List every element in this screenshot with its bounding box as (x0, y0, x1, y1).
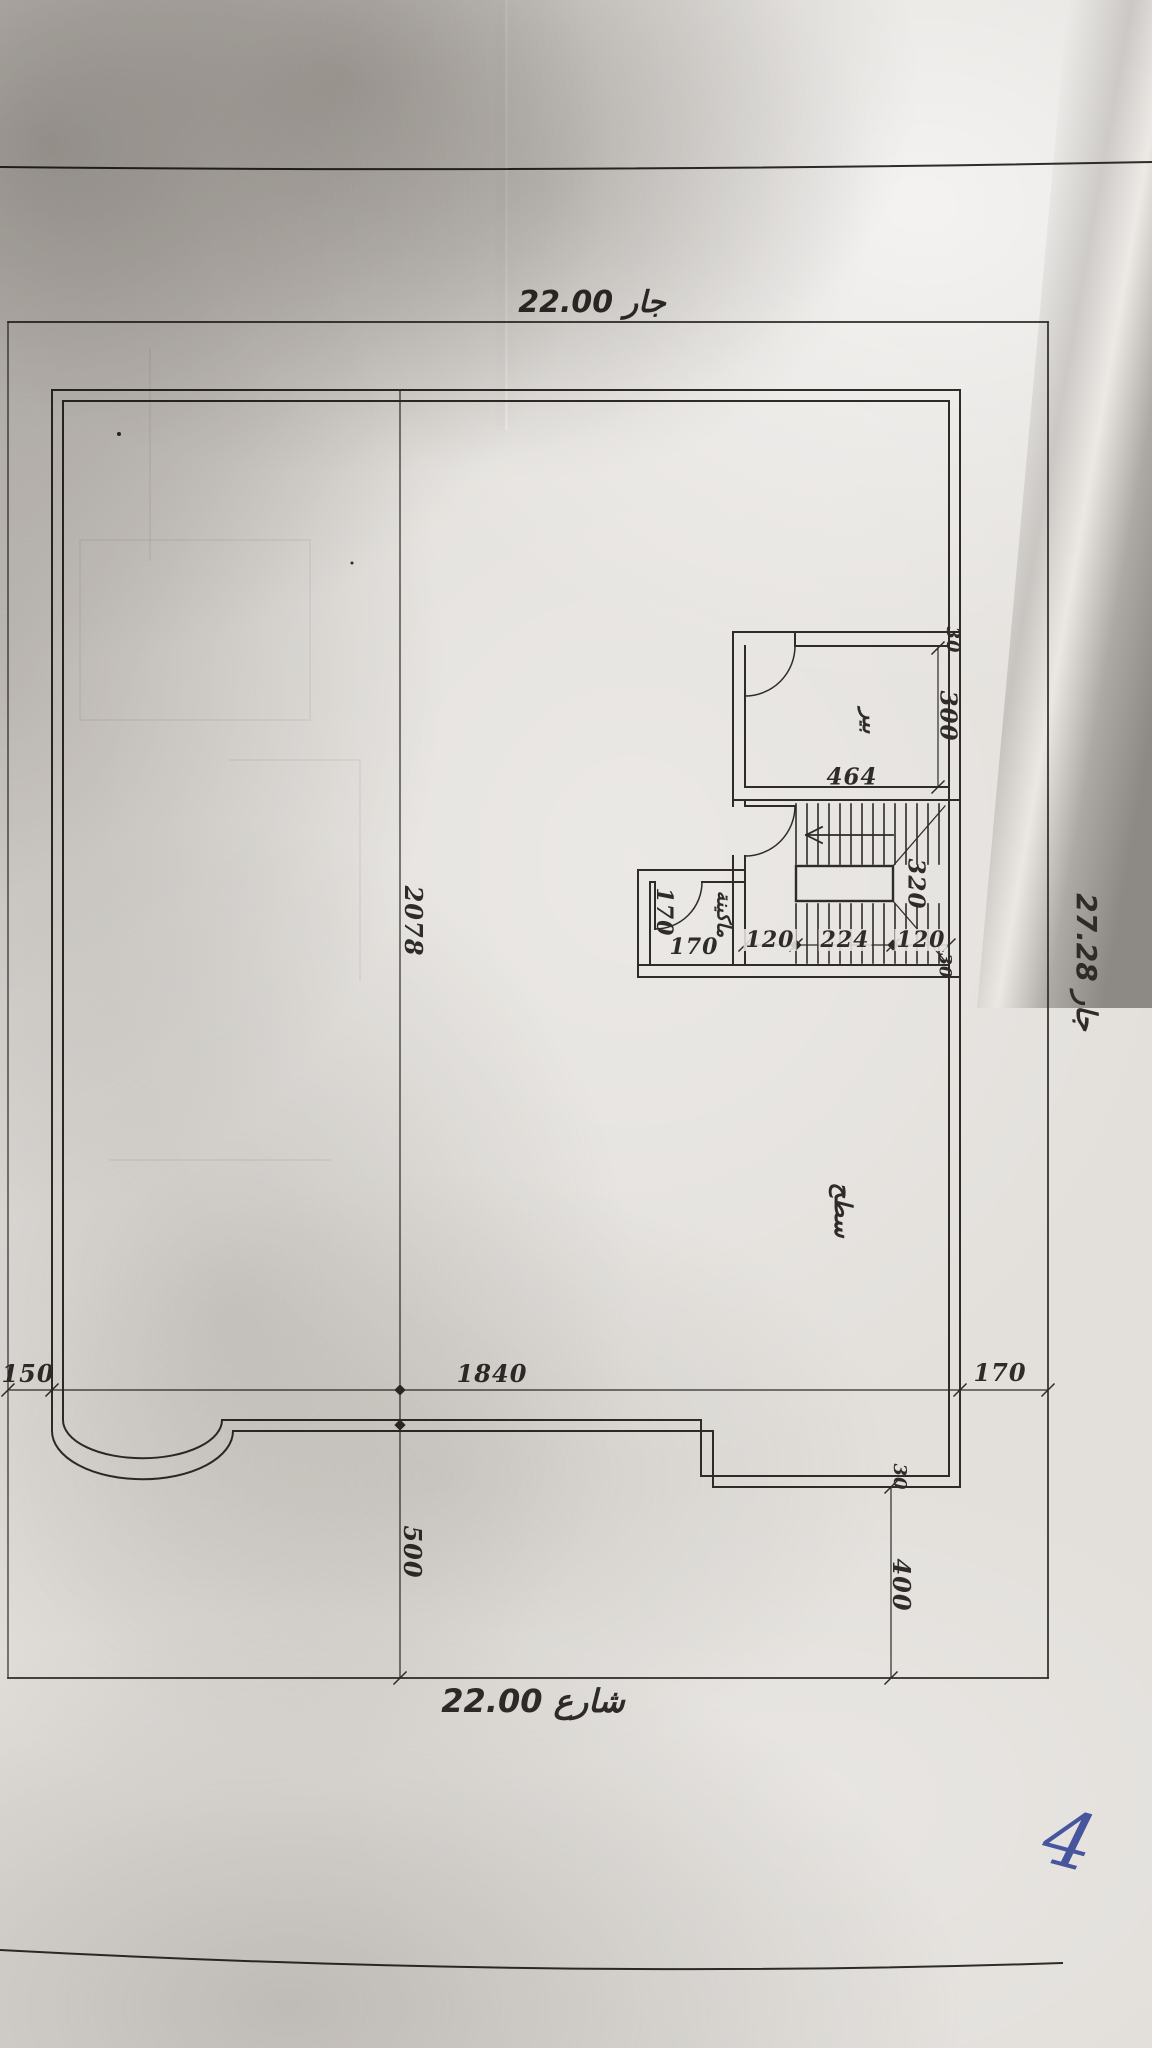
dim-left-margin: 150 (1, 1362, 54, 1386)
street-label: شارع 22.00 (441, 1685, 624, 1717)
dim-stair-left: 120 (744, 929, 797, 951)
roof-surface-label: سطح (831, 1182, 855, 1237)
dim-well-depth: 300 (937, 690, 960, 741)
dim-machine-width: 170 (670, 936, 719, 958)
dim-stair-right: 120 (895, 929, 948, 951)
top-neighbor-label: جار 22.00 (518, 288, 666, 318)
right-neighbor-label: جار 27.28 (1072, 893, 1100, 1031)
dim-frontage: 1840 (457, 1362, 528, 1386)
dim-stair-flight: 320 (905, 858, 928, 909)
dim-right-margin: 170 (973, 1361, 1026, 1385)
machine-room-label: ماكينة (714, 891, 733, 938)
dim-stair-wall: 30 (936, 953, 953, 979)
dim-front-setback: 500 (400, 1525, 424, 1578)
dim-right-rear-setback: 400 (889, 1558, 913, 1611)
photographed-floor-plan: جار 22.00 جار 27.28 شارع 22.00 2078 500 … (0, 0, 1152, 2048)
dim-step-wall: 30 (890, 1463, 908, 1490)
dim-well-width: 464 (826, 766, 877, 789)
dim-roof-depth: 2078 (401, 886, 425, 957)
well-room-label: بير (858, 709, 880, 734)
dim-stair-mid: 224 (819, 929, 872, 951)
dim-well-wall: 30 (943, 626, 961, 653)
dim-machine-depth: 170 (653, 888, 675, 937)
